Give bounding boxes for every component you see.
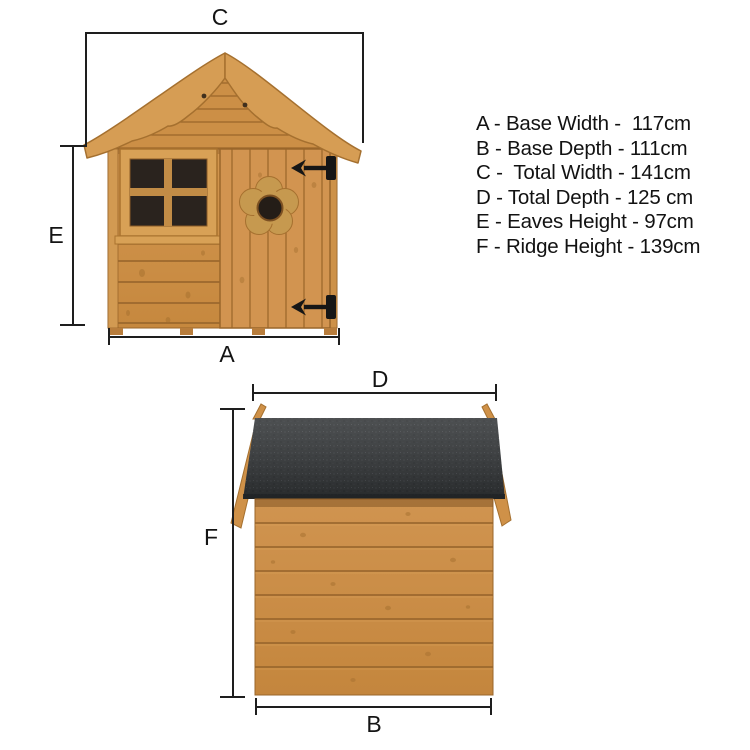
side-view-illustration xyxy=(213,402,513,702)
dim-line-c xyxy=(85,32,364,34)
roof-screw xyxy=(243,103,248,108)
dim-label-b: B xyxy=(352,713,396,736)
legend-item-a: A - Base Width - 117cm xyxy=(476,112,700,137)
side-wall xyxy=(255,499,493,695)
dim-label-a: A xyxy=(205,343,249,366)
dimension-diagram: C E A D F B A - Base Width xyxy=(0,0,750,750)
dim-label-d: D xyxy=(358,368,402,391)
roof-screw xyxy=(202,94,207,99)
dim-line-e xyxy=(72,146,74,326)
front-door xyxy=(220,149,330,328)
legend-item-f: F - Ridge Height - 139cm xyxy=(476,235,700,260)
legend-item-e: E - Eaves Height - 97cm xyxy=(476,210,700,235)
floor-bearers xyxy=(110,328,337,335)
dim-line-d xyxy=(253,392,496,394)
legend-item-c: C - Total Width - 141cm xyxy=(476,161,700,186)
legend-item-b: B - Base Depth - 111cm xyxy=(476,137,700,162)
dim-line-f xyxy=(232,409,234,697)
dim-label-f: F xyxy=(196,526,226,549)
dim-label-c: C xyxy=(198,6,242,29)
dim-line-a xyxy=(109,336,339,338)
front-view-illustration xyxy=(70,45,370,340)
legend-item-d: D - Total Depth - 125 cm xyxy=(476,186,700,211)
dim-label-e: E xyxy=(42,224,70,247)
dim-line-b xyxy=(256,706,492,708)
front-window xyxy=(115,149,222,244)
dimension-legend: A - Base Width - 117cm B - Base Depth - … xyxy=(476,112,700,260)
